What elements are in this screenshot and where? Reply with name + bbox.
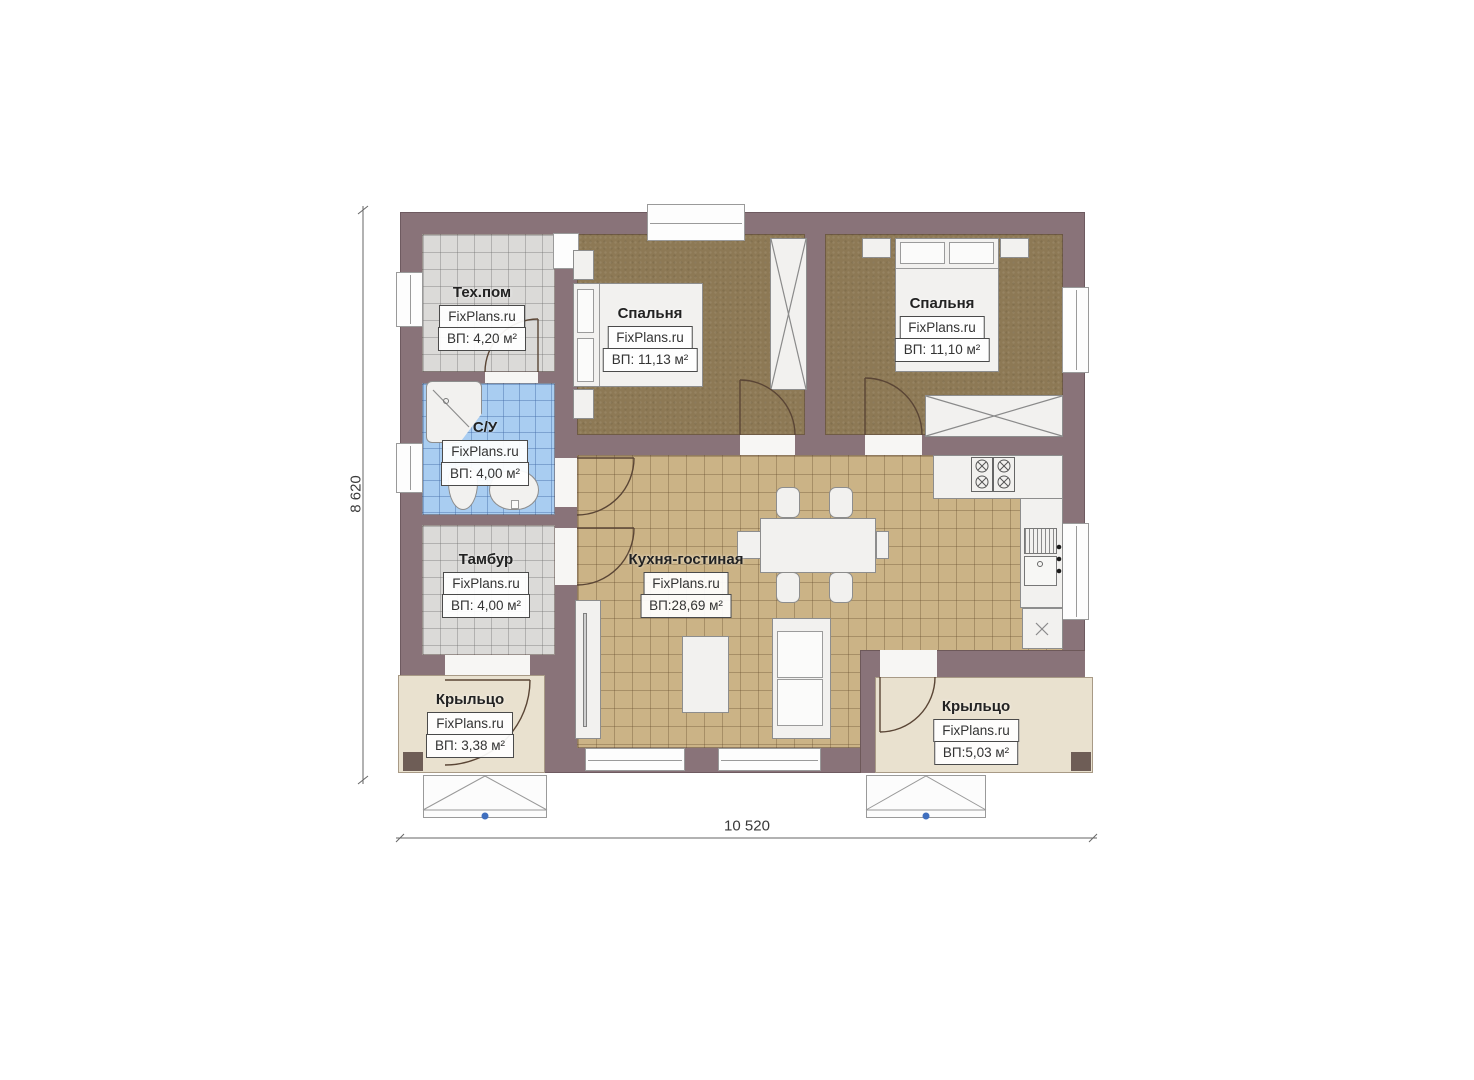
pillow-icon: [900, 242, 945, 264]
porch-pillar-right: [1071, 752, 1091, 771]
wardrobe-icon: [925, 395, 1063, 437]
sofa-cushion: [777, 631, 823, 678]
door-opening-tambour: [555, 528, 577, 585]
dining-chair-icon: [776, 572, 800, 603]
room-label-kitchen-living: Кухня-гостиная FixPlans.ru ВП:28,69 м²: [629, 552, 744, 618]
door-opening-porch-left: [445, 655, 530, 675]
sink-tap: [511, 500, 519, 509]
dining-table-icon: [760, 518, 876, 573]
steps-right: [866, 775, 986, 818]
room-brand: FixPlans.ru: [442, 440, 528, 464]
sink-drainer-icon: [1024, 528, 1057, 554]
room-label-bedroom-1: Спальня FixPlans.ru ВП: 11,13 м²: [603, 306, 698, 372]
door-opening-bathroom: [555, 458, 577, 507]
room-name: Крыльцо: [942, 699, 1010, 715]
room-label-tech: Тех.пом FixPlans.ru ВП: 4,20 м²: [438, 285, 526, 351]
room-name: Тамбур: [459, 552, 513, 568]
nightstand-icon: [573, 389, 594, 419]
porch-pillar-left: [403, 752, 423, 771]
dining-table-tab: [876, 531, 889, 559]
room-brand: FixPlans.ru: [443, 572, 529, 596]
room-area: ВП: 4,20 м²: [438, 327, 526, 351]
wardrobe-icon: [770, 238, 807, 390]
room-brand: FixPlans.ru: [933, 719, 1019, 743]
room-area: ВП: 3,38 м²: [426, 734, 514, 758]
room-name: Кухня-гостиная: [629, 552, 744, 568]
stove-icon: [993, 457, 1015, 492]
door-opening-porch-right: [880, 650, 937, 677]
kitchen-sink-icon: [1024, 556, 1057, 586]
coffee-table-icon: [682, 636, 729, 713]
nightstand-icon: [1000, 238, 1029, 258]
room-area: ВП: 11,13 м²: [603, 348, 698, 372]
window-bottom-2: [718, 748, 821, 771]
room-brand: FixPlans.ru: [439, 305, 525, 329]
dimension-width-label: 10 520: [724, 818, 770, 835]
room-brand: FixPlans.ru: [643, 572, 729, 596]
dining-chair-icon: [829, 572, 853, 603]
room-name: Тех.пом: [453, 285, 511, 301]
room-label-porch-right: Крыльцо FixPlans.ru ВП:5,03 м²: [933, 699, 1019, 765]
window-right-1: [1062, 287, 1089, 373]
window-left-2: [396, 443, 423, 493]
stove-icon: [971, 457, 993, 492]
room-brand: FixPlans.ru: [427, 712, 513, 736]
dining-chair-icon: [829, 487, 853, 518]
window-bottom-1: [585, 748, 685, 771]
room-area: ВП: 4,00 м²: [442, 594, 530, 618]
room-label-porch-left: Крыльцо FixPlans.ru ВП: 3,38 м²: [426, 692, 514, 758]
room-label-bathroom: С/У FixPlans.ru ВП: 4,00 м²: [441, 420, 529, 486]
sofa-icon: [772, 618, 831, 739]
fridge-icon: [1022, 608, 1063, 649]
room-brand: FixPlans.ru: [899, 316, 985, 340]
door-opening-bedroom-1: [740, 435, 795, 455]
sofa-cushion: [777, 679, 823, 726]
room-area: ВП: 11,10 м²: [895, 338, 990, 362]
room-area: ВП:28,69 м²: [640, 594, 732, 618]
floor-plan-canvas: Тех.пом FixPlans.ru ВП: 4,20 м² С/У FixP…: [0, 0, 1474, 1080]
room-label-bedroom-2: Спальня FixPlans.ru ВП: 11,10 м²: [895, 296, 990, 362]
dining-chair-icon: [776, 487, 800, 518]
blanket-line: [599, 284, 600, 386]
window-left-1: [396, 272, 423, 327]
room-name: Крыльцо: [436, 692, 504, 708]
window-right-2: [1062, 523, 1089, 620]
room-brand: FixPlans.ru: [607, 326, 693, 350]
room-name: Спальня: [618, 306, 683, 322]
pillow-icon: [577, 289, 594, 333]
dimension-height-label: 8 620: [348, 475, 365, 513]
pillow-icon: [949, 242, 994, 264]
window-top: [647, 204, 745, 241]
room-name: Спальня: [910, 296, 975, 312]
blanket-line: [896, 268, 998, 269]
door-opening-tech: [485, 372, 538, 383]
tv-icon: [583, 613, 587, 727]
tv-stand-icon: [575, 600, 601, 739]
nightstand-icon: [862, 238, 891, 258]
nightstand-icon: [573, 250, 594, 280]
door-opening-bedroom-2: [865, 435, 922, 455]
pillow-icon: [577, 338, 594, 382]
room-area: ВП:5,03 м²: [934, 741, 1018, 765]
room-area: ВП: 4,00 м²: [441, 462, 529, 486]
room-label-tambour: Тамбур FixPlans.ru ВП: 4,00 м²: [442, 552, 530, 618]
steps-left: [423, 775, 547, 818]
room-name: С/У: [473, 420, 497, 436]
